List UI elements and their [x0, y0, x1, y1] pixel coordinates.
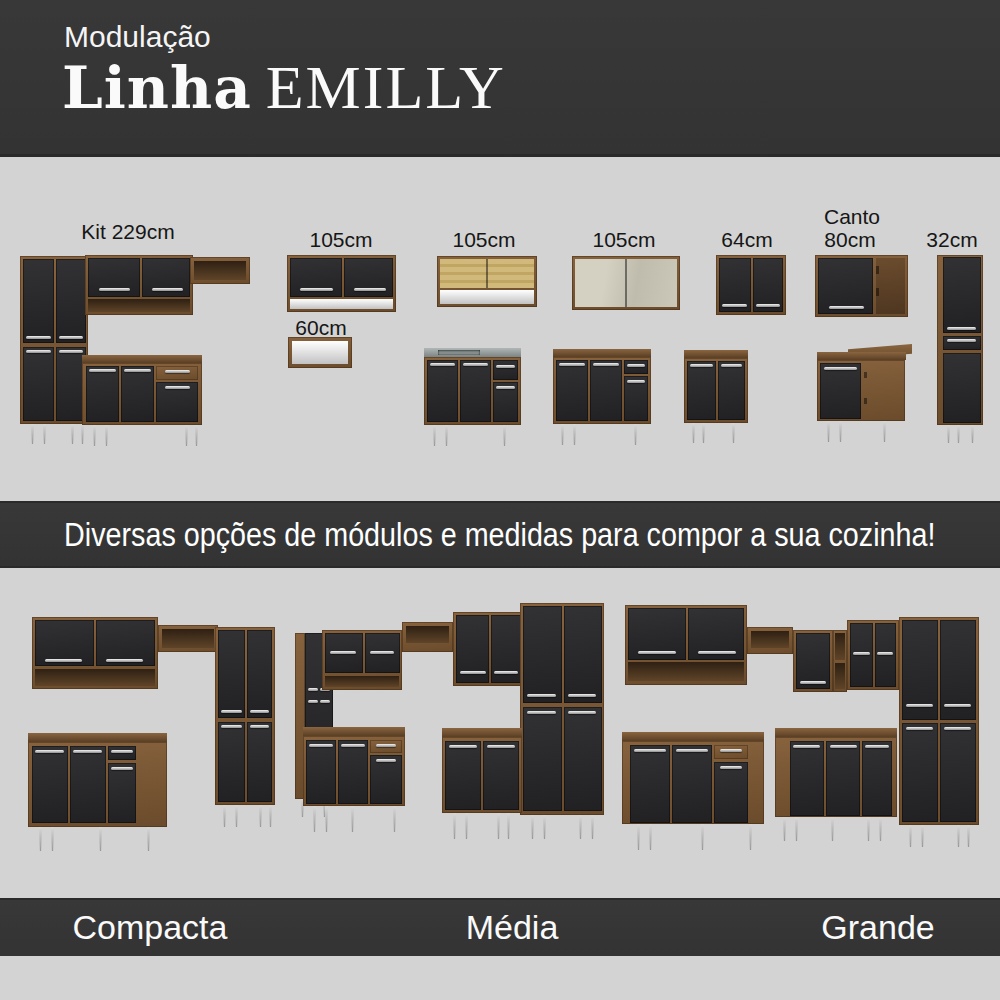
open-shelf [440, 290, 534, 304]
door-handle [430, 363, 455, 366]
door-handle [300, 288, 333, 291]
cabinet-door [156, 382, 198, 422]
cabinet-leg [350, 806, 355, 832]
cabinet-leg [104, 425, 109, 446]
cabinet-door [86, 366, 119, 422]
wood-panel [622, 741, 764, 824]
cabinet-door [826, 741, 860, 816]
door-handle [250, 725, 269, 728]
cabinet-leg [50, 827, 55, 851]
label-wall-105-c: 105cm [592, 228, 655, 252]
door-handle [793, 745, 820, 748]
cabinet-door [556, 360, 588, 421]
cabinet-leg [633, 424, 638, 445]
door-handle [676, 749, 708, 752]
wood-panel [747, 627, 793, 654]
door-handle [376, 759, 396, 762]
cabinet-door [218, 630, 245, 718]
cabinet-leg [700, 824, 705, 850]
wood-countertop [775, 728, 897, 737]
cabinet-door [714, 762, 748, 823]
wood-panel [158, 625, 218, 652]
cabinet-door [687, 361, 716, 420]
cabinet-door [564, 707, 602, 811]
cabinet-leg [184, 425, 189, 446]
cabinet-leg [194, 425, 199, 446]
label-kit-229: Kit 229cm [81, 220, 174, 244]
wood-panel [815, 255, 908, 317]
door-handle [944, 727, 971, 730]
cabinet-leg [146, 827, 151, 851]
cabinet-door [305, 633, 333, 793]
wood-panel [625, 605, 747, 685]
label-canto-80-line2: 80cm [824, 228, 875, 252]
wood-panel [190, 257, 250, 284]
cabinet-leg [30, 424, 35, 444]
door-handle [634, 749, 666, 752]
cabinet-door [56, 259, 86, 343]
cabinet-leg [464, 813, 469, 839]
open-shelf [290, 299, 393, 309]
label-canto-80-line1: Canto [824, 205, 880, 229]
door-divider [876, 266, 879, 274]
cabinet-leg [748, 824, 753, 850]
door-handle [35, 750, 64, 753]
cabinet-leg [530, 815, 535, 839]
cabinet-door [365, 633, 400, 673]
door-handle [330, 651, 356, 654]
label-wall-60: 60cm [295, 316, 346, 340]
door-handle [829, 306, 864, 309]
cabinet-door [630, 745, 670, 823]
door-handle [320, 700, 330, 703]
door-handle [638, 651, 676, 654]
door-handle [320, 688, 330, 691]
door-handle [593, 363, 619, 366]
open-niche [88, 299, 190, 312]
door-handle [627, 380, 645, 383]
door-handle [865, 745, 889, 748]
wood-side-panel [876, 258, 905, 314]
cabinet-door [943, 336, 981, 350]
door-handle [906, 704, 933, 707]
door-handle [906, 727, 933, 730]
door-handle [99, 288, 130, 291]
cabinet-leg [542, 815, 547, 839]
wood-panel [28, 742, 167, 827]
door-handle [947, 339, 976, 342]
door-handle [690, 364, 713, 367]
cabinet-door [940, 723, 976, 822]
door-handle [944, 704, 971, 707]
cabinet-door [247, 630, 272, 718]
banner-text: Diversas opções de módulos e medidas par… [64, 516, 935, 554]
cabinet-door [456, 615, 489, 683]
door-handle [720, 766, 742, 769]
cabinet-leg [98, 827, 103, 851]
door-handle [853, 652, 870, 655]
cabinet-door [624, 376, 648, 421]
wood-panel [295, 633, 305, 799]
steel-countertop [424, 348, 521, 357]
cabinet-door [943, 353, 981, 423]
door-handle [487, 745, 515, 748]
cabinet-leg [956, 425, 961, 443]
cabinet-leg [970, 425, 975, 443]
cabinet-door [564, 606, 602, 703]
door-handle [221, 725, 242, 728]
door-divider [486, 259, 488, 288]
cabinet-leg [946, 425, 951, 443]
wood-panel [572, 256, 680, 310]
cabinet-leg [444, 425, 449, 446]
door-handle [527, 711, 556, 714]
wood-countertop [303, 727, 405, 736]
door-handle [370, 651, 394, 654]
cabinet-leg [691, 423, 696, 443]
door-handle [309, 744, 333, 747]
wood-panel [833, 630, 847, 692]
set-label-grande: Grande [821, 908, 934, 947]
cabinet-leg [826, 421, 831, 442]
cabinet-leg [908, 825, 913, 847]
door-handle [877, 652, 893, 655]
header-eyebrow: Modulação [64, 20, 211, 54]
wood-panel [288, 337, 352, 368]
cabinet-door [902, 723, 938, 822]
door-handle [73, 750, 102, 753]
wood-countertop [684, 350, 748, 358]
cabinet-leg [830, 817, 835, 841]
cabinet-door [142, 258, 190, 297]
cabinet-leg [838, 421, 843, 442]
cabinet-leg [42, 424, 47, 444]
cabinet-door [491, 615, 521, 683]
door-handle [106, 659, 143, 662]
cabinet-door [902, 620, 938, 720]
cabinet-leg [590, 815, 595, 839]
cabinet-door [628, 608, 686, 660]
cabinet-leg [38, 827, 43, 851]
wood-panel [817, 360, 905, 421]
promo-sheet: Modulação LinhaEMILLY Diversas opções de… [0, 0, 1000, 1000]
cabinet-door [370, 755, 402, 804]
open-niche [35, 669, 155, 686]
cabinet-leg [920, 825, 925, 847]
cabinet-door [493, 382, 518, 422]
cabinet-leg [324, 806, 329, 832]
cabinet-door [523, 606, 562, 703]
door-handle [308, 688, 318, 691]
cabinet-leg [222, 805, 227, 827]
cabinet-door [719, 258, 751, 312]
door-handle [449, 745, 477, 748]
cabinet-door [796, 633, 830, 689]
corner-countertop-wing [848, 344, 912, 359]
cabinet-leg [731, 423, 736, 443]
cabinet-door [338, 740, 368, 804]
wood-panel [82, 363, 202, 425]
set-label-compacta: Compacta [73, 908, 228, 947]
wood-panel [716, 255, 786, 315]
cabinet-door [56, 347, 86, 421]
label-wall-105-a: 105cm [309, 228, 372, 252]
wood-panel [303, 736, 405, 806]
cabinet-door [427, 360, 458, 422]
door-handle [496, 386, 515, 389]
cabinet-leg [878, 817, 883, 841]
door-handle [152, 288, 183, 291]
cabinet-door [306, 740, 336, 804]
cabinet-leg [572, 424, 577, 445]
door-handle [341, 744, 365, 747]
wood-panel [714, 745, 748, 759]
wood-panel [287, 255, 396, 312]
door-handle [496, 365, 515, 368]
door-handle [250, 710, 269, 713]
cabinet-door [88, 258, 140, 297]
cabinet-leg [432, 425, 437, 446]
glass-wood-doors [440, 259, 534, 288]
wood-panel [775, 737, 897, 817]
cabinet-door [820, 363, 861, 419]
door-handle [947, 327, 976, 330]
door-handle [376, 744, 396, 747]
wood-countertop [28, 733, 167, 742]
door-handle [165, 386, 190, 389]
cabinet-door [344, 258, 393, 297]
door-divider [876, 288, 879, 296]
door-handle [221, 710, 242, 713]
door-divider [864, 372, 867, 378]
door-handle [720, 749, 742, 752]
wood-panel [402, 622, 453, 652]
cabinet-leg [452, 813, 457, 839]
cabinet-door [35, 620, 94, 666]
open-niche [628, 662, 744, 681]
wood-countertop [817, 352, 906, 360]
cabinet-leg [966, 825, 971, 847]
glass-sliding-doors [575, 259, 677, 307]
wood-panel [684, 358, 748, 423]
cabinet-door [325, 633, 363, 673]
label-tall-32: 32cm [926, 228, 977, 252]
header-band: Modulação LinhaEMILLY [0, 0, 1000, 157]
cabinet-leg [956, 825, 961, 847]
wood-countertop [82, 355, 202, 363]
set-label-media: Média [466, 908, 559, 947]
door-handle [45, 659, 82, 662]
cabinet-door [96, 620, 155, 666]
wood-panel [20, 256, 88, 424]
door-handle [559, 363, 585, 366]
door-handle [89, 369, 116, 372]
sink-basin [438, 350, 480, 355]
wood-panel [937, 255, 983, 425]
door-handle [165, 370, 190, 373]
cabinet-door [818, 258, 873, 314]
door-handle [463, 363, 488, 366]
door-handle [354, 288, 386, 291]
door-handle [527, 694, 556, 697]
cabinet-leg [234, 805, 239, 827]
open-shelf [292, 341, 348, 364]
door-handle [800, 681, 826, 684]
open-niche [751, 631, 789, 648]
label-wall-64: 64cm [721, 228, 772, 252]
cabinet-door [23, 259, 54, 343]
cabinet-leg [80, 424, 85, 444]
cabinet-door [940, 620, 976, 720]
cabinet-door [790, 741, 824, 816]
wood-panel [322, 630, 402, 690]
cabinet-leg [794, 817, 799, 841]
door-handle [568, 711, 596, 714]
wood-countertop [442, 728, 522, 737]
cabinet-leg [496, 813, 501, 839]
cabinet-door [718, 361, 745, 420]
cabinet-leg [866, 817, 871, 841]
cabinet-leg [578, 815, 583, 839]
cabinet-door [523, 707, 562, 811]
wood-panel [847, 620, 899, 690]
title-emilly: EMILLY [266, 53, 506, 121]
cabinet-leg [701, 423, 706, 443]
cabinet-leg [92, 425, 97, 446]
open-niche [835, 633, 845, 660]
wood-countertop [622, 732, 764, 741]
cabinet-door [493, 360, 518, 380]
door-handle [494, 671, 518, 674]
cabinet-door [688, 608, 744, 660]
door-handle [698, 651, 736, 654]
cabinet-door [23, 347, 54, 421]
cabinet-door [875, 623, 896, 687]
cabinet-door [445, 741, 481, 810]
cabinet-door [624, 360, 648, 374]
door-handle [756, 304, 780, 307]
cabinet-leg [506, 813, 511, 839]
cabinet-leg [782, 817, 787, 841]
wood-panel [32, 617, 158, 689]
wood-panel [370, 740, 402, 753]
cabinet-door [32, 746, 68, 823]
open-niche [162, 629, 214, 648]
label-wall-105-b: 105cm [452, 228, 515, 252]
wood-panel [215, 627, 275, 805]
cabinet-door [672, 745, 712, 823]
wood-panel [156, 366, 198, 380]
cabinet-door [753, 258, 783, 312]
wood-panel [453, 612, 523, 686]
title-linha: Linha [62, 54, 252, 122]
cabinet-leg [322, 799, 327, 817]
cabinet-door [483, 741, 519, 810]
wood-panel [424, 357, 521, 425]
cabinet-door [943, 257, 981, 333]
cabinet-leg [70, 424, 75, 444]
door-handle [26, 350, 51, 353]
cabinet-door [218, 722, 245, 802]
cabinet-leg [392, 806, 397, 832]
door-handle [111, 750, 133, 753]
door-handle [824, 367, 857, 370]
cabinet-door [108, 746, 136, 760]
door-handle [59, 350, 83, 353]
cabinet-leg [312, 806, 317, 832]
wood-panel [85, 255, 193, 315]
wood-panel [899, 617, 979, 825]
cabinet-door [460, 360, 491, 422]
open-niche [835, 663, 845, 689]
cabinet-door [850, 623, 873, 687]
wood-panel [437, 256, 537, 307]
cabinet-door [121, 366, 154, 422]
cabinet-leg [560, 424, 565, 445]
wood-countertop [553, 349, 651, 357]
cabinet-door [70, 746, 106, 823]
cabinet-leg [636, 824, 641, 850]
open-niche [325, 676, 399, 687]
cabinet-door [590, 360, 622, 421]
cabinet-door [108, 763, 136, 823]
door-handle [59, 336, 83, 339]
door-handle [460, 671, 486, 674]
cabinet-leg [268, 805, 273, 827]
wood-panel [520, 603, 604, 815]
door-handle [568, 694, 596, 697]
open-niche [406, 626, 449, 643]
wood-panel [793, 630, 833, 692]
door-handle [722, 304, 747, 307]
door-handle [308, 700, 318, 703]
door-handle [111, 767, 133, 770]
page-title: LinhaEMILLY [62, 52, 506, 123]
door-divider [625, 259, 627, 307]
door-handle [26, 336, 51, 339]
cabinet-door [247, 722, 272, 802]
cabinet-door [862, 741, 892, 816]
cabinet-leg [502, 425, 507, 446]
door-handle [124, 369, 151, 372]
cabinet-door [290, 258, 342, 297]
door-divider [864, 398, 867, 404]
door-handle [830, 745, 857, 748]
cabinet-leg [312, 799, 317, 817]
cabinet-leg [882, 421, 887, 442]
open-niche [194, 261, 246, 280]
wood-panel [553, 357, 651, 424]
cabinet-leg [648, 824, 653, 850]
door-handle [721, 364, 742, 367]
wood-panel [442, 737, 522, 813]
door-handle [627, 364, 645, 367]
banner-band: Diversas opções de módulos e medidas par… [0, 501, 1000, 568]
cabinet-leg [258, 805, 263, 827]
cabinet-leg [300, 799, 305, 817]
